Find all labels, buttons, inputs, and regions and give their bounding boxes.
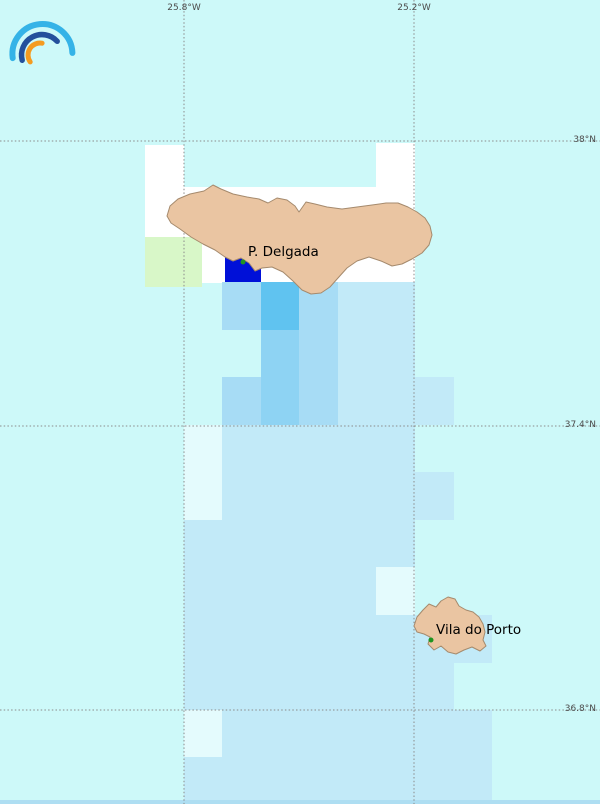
grid-cell-p4 <box>261 282 299 330</box>
logo-arc-orange-icon <box>28 43 42 62</box>
grid-cell-p2 <box>299 330 338 378</box>
grid-cell-p2 <box>222 377 261 425</box>
grid-cell-p1 <box>338 377 454 425</box>
grid-cell-p3 <box>261 377 299 425</box>
grid-cell-p1 <box>184 757 492 804</box>
grid-cell-p2 <box>222 282 261 330</box>
grid-cell-p1 <box>415 472 454 520</box>
city-dot <box>241 260 246 265</box>
bottom-edge-strip <box>0 800 600 804</box>
grid-cell-p2 <box>299 377 338 425</box>
city-dot <box>429 638 434 643</box>
grid-cell-green <box>145 237 202 287</box>
grid-cell-p1 <box>184 520 415 568</box>
grid-cell-masked <box>184 425 222 520</box>
grid-cell-p1 <box>338 330 415 378</box>
weather-map <box>0 0 600 804</box>
grid-cell-p1 <box>338 282 415 330</box>
grid-cell-p1 <box>222 710 492 758</box>
map-canvas[interactable]: P. Delgada Vila do Porto 25.8°W 25.2°W 3… <box>0 0 600 804</box>
grid-cell-p1 <box>184 567 376 615</box>
grid-cell-masked <box>376 567 415 615</box>
grid-cell-p3 <box>261 330 299 378</box>
meteoblue-logo[interactable] <box>0 0 90 75</box>
grid-cell-masked <box>184 710 222 758</box>
grid-cell-p1 <box>222 425 415 520</box>
